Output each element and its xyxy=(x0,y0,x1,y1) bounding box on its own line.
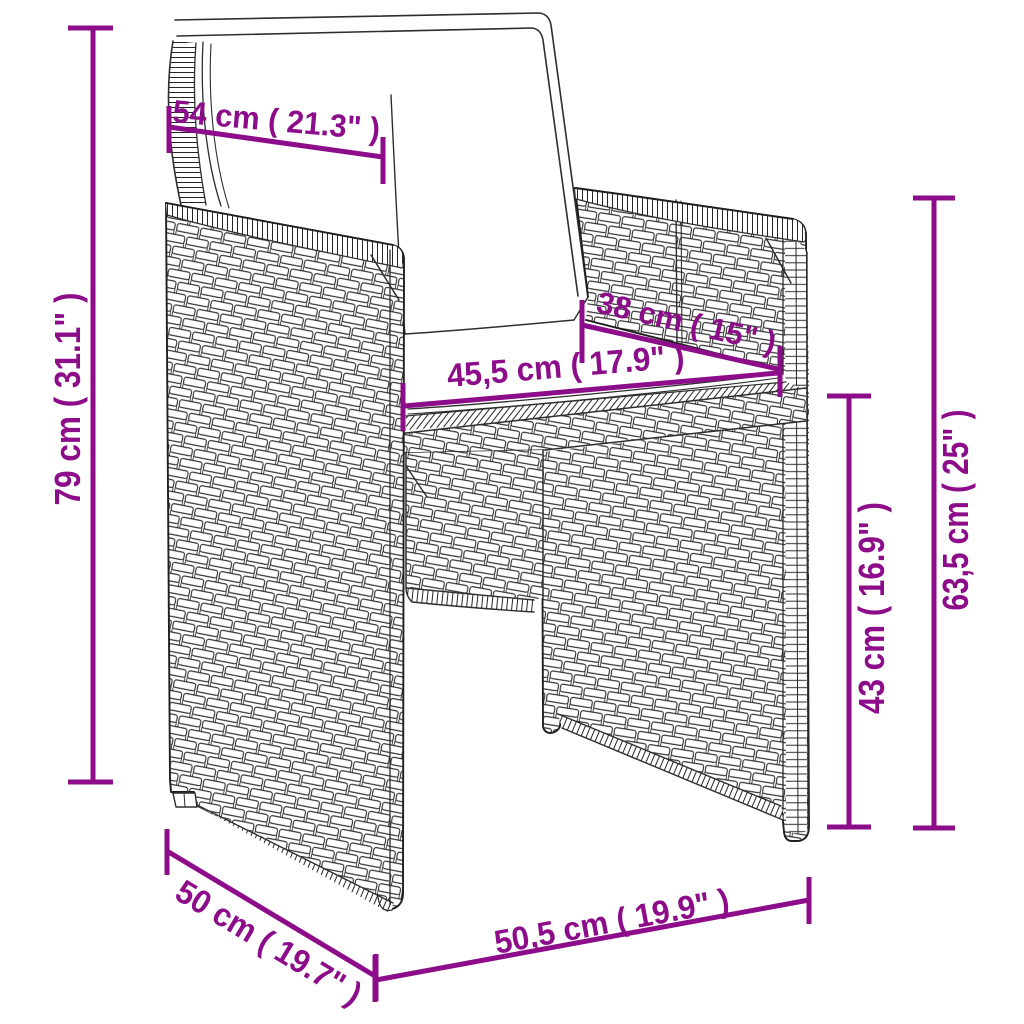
svg-text:63,5 cm ( 25" ): 63,5 cm ( 25" ) xyxy=(935,410,976,611)
svg-text:79 cm ( 31.1" ): 79 cm ( 31.1" ) xyxy=(47,293,88,506)
svg-text:43 cm ( 16.9" ): 43 cm ( 16.9" ) xyxy=(851,502,892,714)
